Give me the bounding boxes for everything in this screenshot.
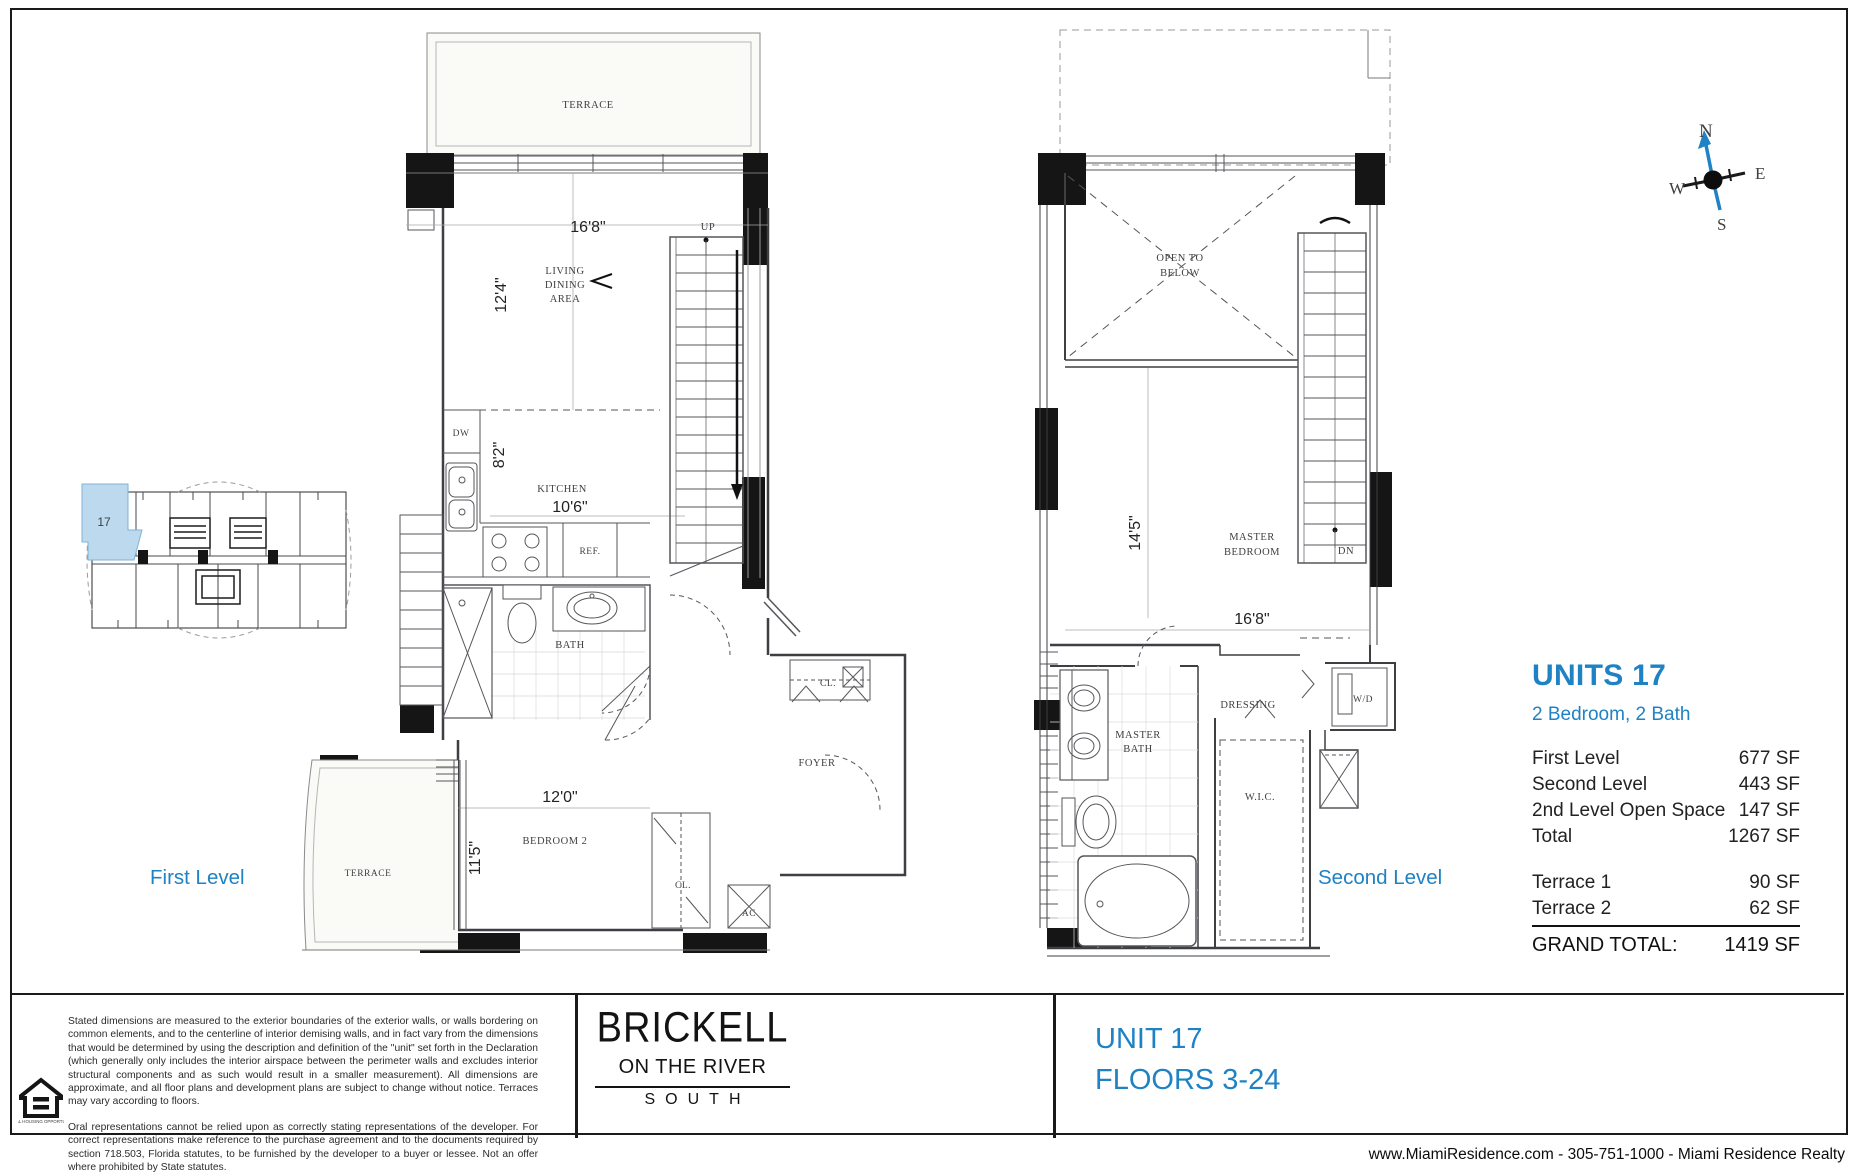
- kitchen-label: KITCHEN: [537, 484, 587, 495]
- stat-row: Total1267 SF: [1532, 824, 1800, 850]
- toilet-tank: [1062, 798, 1075, 846]
- terrace-rows: Terrace 190 SF Terrace 262 SF: [1532, 870, 1800, 922]
- ac-label: AC: [742, 909, 756, 919]
- compass-w: W: [1669, 179, 1686, 198]
- terrace-bottom-label: TERRACE: [345, 869, 392, 879]
- footer-contact: www.MiamiResidence.com - 305-751-1000 - …: [1369, 1146, 1845, 1164]
- wic: [1220, 700, 1303, 940]
- dim-12-4: 12'4": [493, 277, 510, 312]
- brickell-logo: BRICKELL ON THE RIVER SOUTH: [595, 1003, 790, 1109]
- stair-up: [592, 237, 743, 576]
- disclaimer-paragraph-1: Stated dimensions are measured to the ex…: [68, 1015, 538, 1109]
- open-below-label-2: BELOW: [1160, 268, 1200, 279]
- key-plan: 17: [78, 470, 360, 650]
- grand-total-rule: [1532, 925, 1800, 927]
- title-band: EQUAL HOUSING OPPORTUNITY Stated dimensi…: [10, 993, 1844, 1138]
- band-divider: [1053, 995, 1056, 1138]
- dim-14-5: 14'5": [1127, 515, 1144, 550]
- stat-row: First Level677 SF: [1532, 746, 1800, 772]
- dressing-label: DRESSING: [1220, 700, 1275, 711]
- terrace-roof-outline: [1060, 30, 1390, 165]
- equal-housing-logo: EQUAL HOUSING OPPORTUNITY: [18, 1077, 64, 1134]
- toilet: [508, 603, 536, 643]
- living-label-2: DINING: [545, 280, 585, 291]
- bedroom2-label: BEDROOM 2: [523, 836, 588, 847]
- units-title: UNITS 17: [1532, 660, 1800, 692]
- second-level-caption: Second Level: [1318, 866, 1442, 890]
- area-rows: First Level677 SF Second Level443 SF 2nd…: [1532, 746, 1800, 850]
- compass-n: N: [1699, 121, 1713, 142]
- master-bath-fixtures: [1060, 670, 1196, 946]
- tub: [1078, 856, 1196, 946]
- logo-line-2: ON THE RIVER: [595, 1053, 790, 1081]
- compass-e: E: [1755, 164, 1766, 183]
- stat-label: First Level: [1532, 746, 1620, 772]
- logo-line-1: BRICKELL: [595, 1000, 790, 1056]
- cl-foyer-label: CL.: [820, 679, 836, 689]
- second-level-plan: OPEN TO BELOW 14'5" MASTER BEDROOM DN 16…: [1020, 18, 1460, 958]
- compass-needle: [1683, 130, 1745, 210]
- stove: [483, 527, 547, 577]
- master-bath-label-2: BATH: [1123, 744, 1152, 755]
- window-band: [1085, 154, 1355, 172]
- washer-dryer: [1302, 668, 1387, 726]
- stat-value: 147 SF: [1739, 798, 1800, 824]
- up-label: UP: [701, 222, 715, 233]
- wic-label: W.I.C.: [1245, 792, 1275, 803]
- window-band: [453, 154, 743, 172]
- stat-row: Second Level443 SF: [1532, 772, 1800, 798]
- disclaimer-paragraph-2: Oral representations cannot be relied up…: [68, 1121, 538, 1173]
- unit-stats-panel: UNITS 17 2 Bedroom, 2 Bath First Level67…: [1532, 660, 1800, 958]
- bedroom-closet: [652, 813, 710, 928]
- ref-label: REF.: [579, 547, 600, 557]
- living-label-1: LIVING: [545, 266, 584, 277]
- terrace-bottom-shape: [304, 760, 466, 950]
- stat-label: Terrace 1: [1532, 870, 1611, 896]
- grand-total-row: GRAND TOTAL: 1419 SF: [1532, 932, 1800, 958]
- unit-floors: FLOORS 3-24: [1095, 1060, 1280, 1101]
- dim-11-5: 11'5": [467, 841, 484, 875]
- stat-row: Terrace 190 SF: [1532, 870, 1800, 896]
- band-divider: [575, 995, 578, 1138]
- core-hatch: [1040, 652, 1058, 918]
- dn-label: DN: [1338, 546, 1354, 557]
- dim-12-0: 12'0": [542, 789, 577, 806]
- toilet-tank: [503, 585, 541, 599]
- dim-8-2: 8'2": [491, 442, 508, 469]
- stat-value: 677 SF: [1739, 746, 1800, 772]
- stat-value: 1267 SF: [1728, 824, 1800, 850]
- open-to-below-x: [1068, 176, 1295, 357]
- units-subtitle: 2 Bedroom, 2 Bath: [1532, 704, 1800, 726]
- bath-label: BATH: [555, 640, 584, 651]
- stair-down: [1298, 218, 1366, 563]
- compass-s: S: [1717, 215, 1727, 234]
- dim-10-6: 10'6": [552, 499, 587, 516]
- grand-total-value: 1419 SF: [1724, 932, 1800, 958]
- ac-closet: [728, 885, 770, 928]
- first-level-caption: First Level: [150, 866, 245, 890]
- wd-label: W/D: [1353, 695, 1373, 705]
- unit-title: UNIT 17: [1095, 1019, 1280, 1060]
- master-bedroom-label-1: MASTER: [1229, 532, 1275, 543]
- stat-label: 2nd Level Open Space: [1532, 798, 1725, 824]
- floorplan-sheet: TERRACE 16'8" UP 12'4" LIVING DINING ARE…: [0, 0, 1861, 1173]
- grand-total-label: GRAND TOTAL:: [1532, 932, 1678, 958]
- bath-fixtures: [443, 585, 650, 720]
- unit-floors-block: UNIT 17 FLOORS 3-24: [1095, 1019, 1280, 1101]
- eho-caption: EQUAL HOUSING OPPORTUNITY: [18, 1119, 64, 1124]
- stat-value: 90 SF: [1749, 870, 1800, 896]
- logo-line-3: SOUTH: [595, 1086, 790, 1109]
- stat-value: 62 SF: [1749, 896, 1800, 922]
- disclaimer-text: Stated dimensions are measured to the ex…: [68, 1015, 538, 1173]
- stat-label: Second Level: [1532, 772, 1647, 798]
- dim-16-8: 16'8": [570, 219, 605, 236]
- terrace-top-label: TERRACE: [562, 100, 613, 111]
- master-bedroom-label-2: BEDROOM: [1224, 547, 1280, 558]
- stat-value: 443 SF: [1739, 772, 1800, 798]
- key-plan-unit-number: 17: [97, 515, 111, 529]
- cl-bedroom-label: CL.: [675, 881, 691, 891]
- shaft: [1320, 750, 1358, 808]
- exterior-walls: [443, 208, 905, 930]
- stat-row: Terrace 262 SF: [1532, 896, 1800, 922]
- master-bath-label-1: MASTER: [1115, 730, 1161, 741]
- stat-label: Terrace 2: [1532, 896, 1611, 922]
- foyer-label: FOYER: [799, 758, 836, 769]
- compass-rose: N E W S: [1663, 103, 1783, 238]
- core-hatch: [400, 210, 443, 705]
- entry-doors: [605, 595, 880, 810]
- dw-label: DW: [453, 429, 470, 439]
- terrace-top: [427, 33, 760, 155]
- living-label-3: AREA: [550, 294, 581, 305]
- stat-label: Total: [1532, 824, 1572, 850]
- open-below-label-1: OPEN TO: [1156, 253, 1203, 264]
- stat-row: 2nd Level Open Space147 SF: [1532, 798, 1800, 824]
- dim-16-8-2: 16'8": [1234, 611, 1269, 628]
- unit-17-highlight: [82, 484, 142, 560]
